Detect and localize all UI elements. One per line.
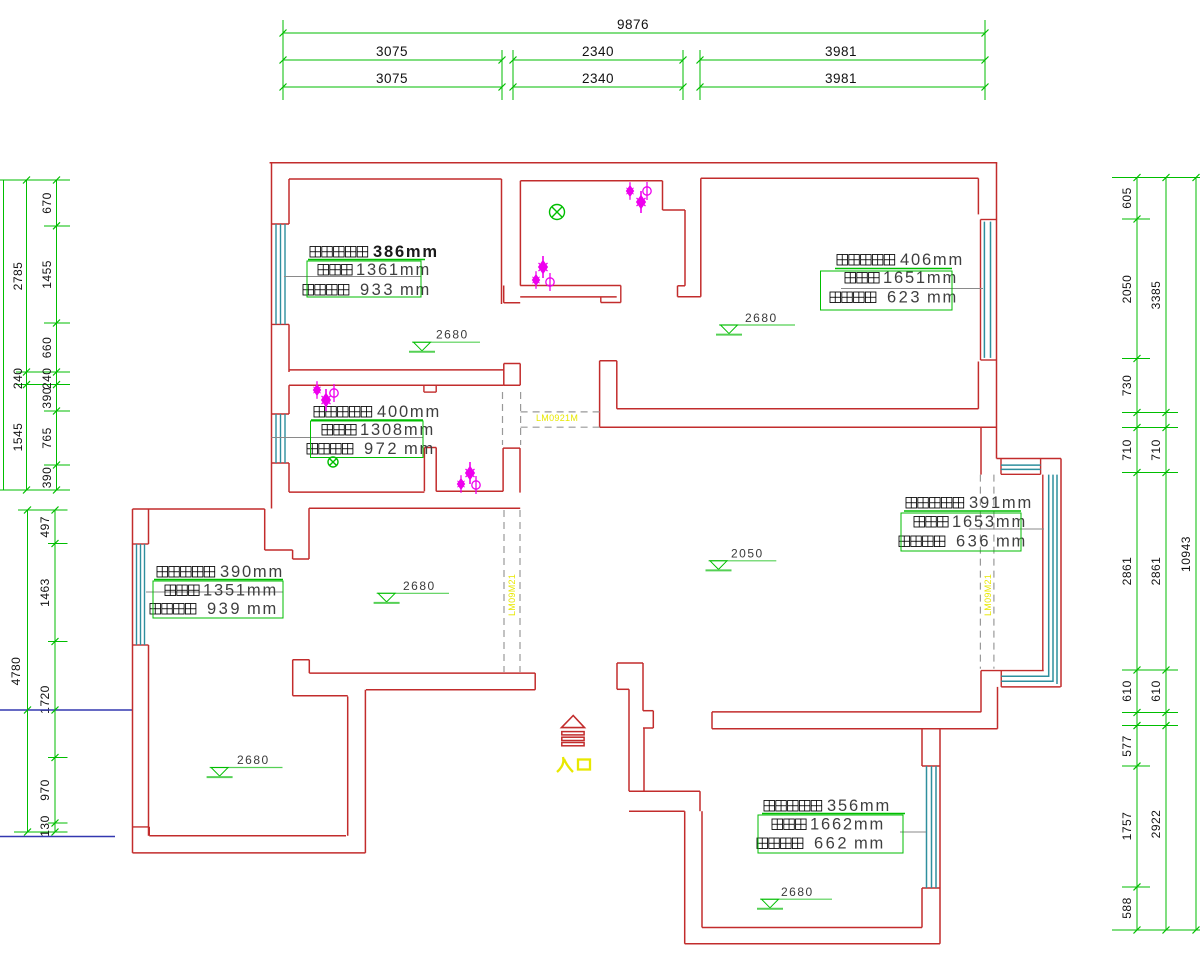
svg-text:2680: 2680 [403,579,436,593]
svg-text:3981: 3981 [825,71,857,86]
svg-text:2050: 2050 [731,547,764,561]
svg-text:mm: mm [400,281,431,299]
svg-text:662: 662 [814,835,849,853]
svg-text:3075: 3075 [376,71,408,86]
svg-text:2680: 2680 [745,311,778,325]
svg-text:660: 660 [40,337,54,359]
svg-text:10943: 10943 [1179,536,1193,572]
svg-text:391mm: 391mm [969,494,1033,512]
svg-text:2340: 2340 [582,71,614,86]
svg-text:1308mm: 1308mm [360,421,435,439]
svg-text:1361mm: 1361mm [356,261,431,279]
svg-text:mm: mm [996,533,1027,551]
svg-text:1757: 1757 [1120,812,1134,841]
svg-text:933: 933 [360,281,395,299]
svg-text:390mm: 390mm [220,563,284,581]
svg-text:3981: 3981 [825,44,857,59]
svg-text:390: 390 [40,387,54,409]
svg-text:623: 623 [887,289,922,307]
svg-text:636: 636 [956,533,991,551]
svg-text:577: 577 [1120,735,1134,757]
svg-text:9876: 9876 [617,17,649,32]
svg-text:605: 605 [1120,187,1134,209]
svg-text:670: 670 [40,192,54,214]
svg-text:3385: 3385 [1149,281,1163,310]
svg-text:1653mm: 1653mm [952,513,1027,531]
svg-text:730: 730 [1120,375,1134,397]
svg-text:1662mm: 1662mm [810,816,885,834]
svg-text:497: 497 [38,516,52,538]
svg-text:390: 390 [40,467,54,489]
svg-text:710: 710 [1120,439,1134,461]
svg-text:406mm: 406mm [900,251,964,269]
svg-text:2680: 2680 [237,753,270,767]
svg-text:1463: 1463 [38,578,52,607]
svg-text:mm: mm [247,600,278,618]
svg-text:972: 972 [364,440,399,458]
svg-text:2861: 2861 [1149,557,1163,586]
svg-text:765: 765 [40,427,54,449]
svg-text:240: 240 [11,368,25,390]
svg-text:LM0921M: LM0921M [536,413,578,423]
svg-text:LM09M21: LM09M21 [507,574,517,616]
svg-text:LM09M21: LM09M21 [983,574,993,616]
svg-text:1351mm: 1351mm [203,582,278,600]
svg-text:356mm: 356mm [827,797,891,815]
svg-text:1651mm: 1651mm [883,269,958,287]
svg-text:2680: 2680 [781,885,814,899]
svg-text:3075: 3075 [376,44,408,59]
svg-text:386mm: 386mm [373,243,439,261]
svg-text:mm: mm [854,835,885,853]
svg-text:1455: 1455 [40,260,54,289]
svg-text:710: 710 [1149,439,1163,461]
svg-text:610: 610 [1120,680,1134,702]
svg-text:2785: 2785 [11,262,25,291]
svg-text:2680: 2680 [436,328,469,342]
svg-text:588: 588 [1120,897,1134,919]
svg-text:2050: 2050 [1120,275,1134,304]
svg-text:610: 610 [1149,680,1163,702]
svg-text:4780: 4780 [9,657,23,686]
svg-text:939: 939 [207,600,242,618]
svg-text:2861: 2861 [1120,557,1134,586]
svg-text:mm: mm [927,289,958,307]
svg-text:1545: 1545 [11,423,25,452]
svg-text:240: 240 [40,368,54,390]
svg-text:130: 130 [38,815,52,837]
svg-text:mm: mm [404,440,435,458]
svg-text:400mm: 400mm [377,403,441,421]
svg-text:2922: 2922 [1149,810,1163,839]
svg-text:970: 970 [38,779,52,801]
svg-text:2340: 2340 [582,44,614,59]
